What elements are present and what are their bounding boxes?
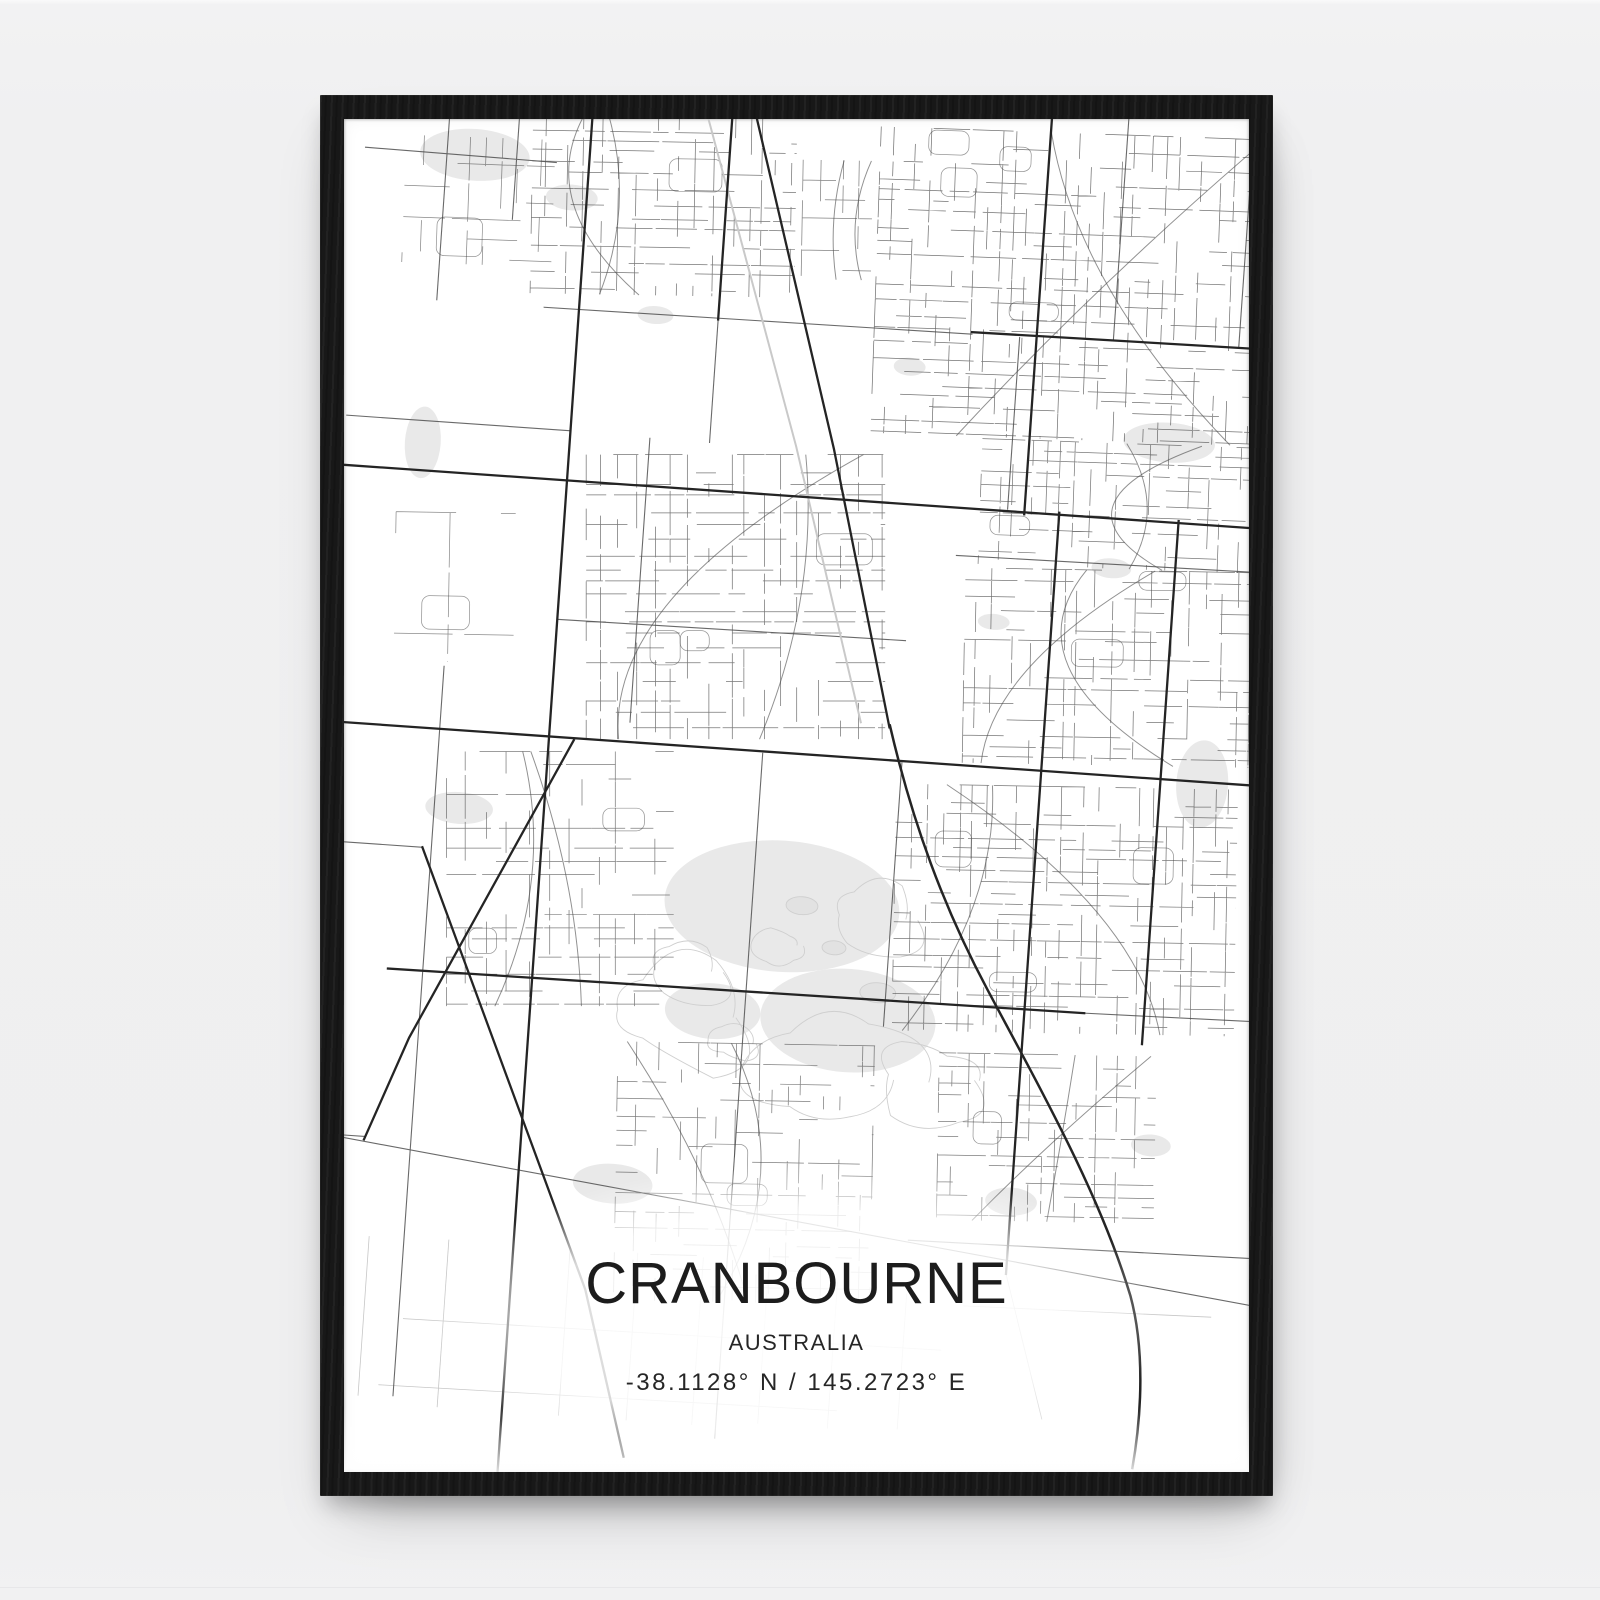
map-poster: CRANBOURNE AUSTRALIA -38.1128° N / 145.2…: [344, 119, 1249, 1472]
street-map: [344, 119, 1249, 1472]
poster-frame: CRANBOURNE AUSTRALIA -38.1128° N / 145.2…: [320, 95, 1273, 1496]
residential-streets: [344, 119, 1249, 1342]
bottom-fade: [344, 1407, 1249, 1472]
product-photo-background: CRANBOURNE AUSTRALIA -38.1128° N / 145.2…: [0, 0, 1600, 1600]
